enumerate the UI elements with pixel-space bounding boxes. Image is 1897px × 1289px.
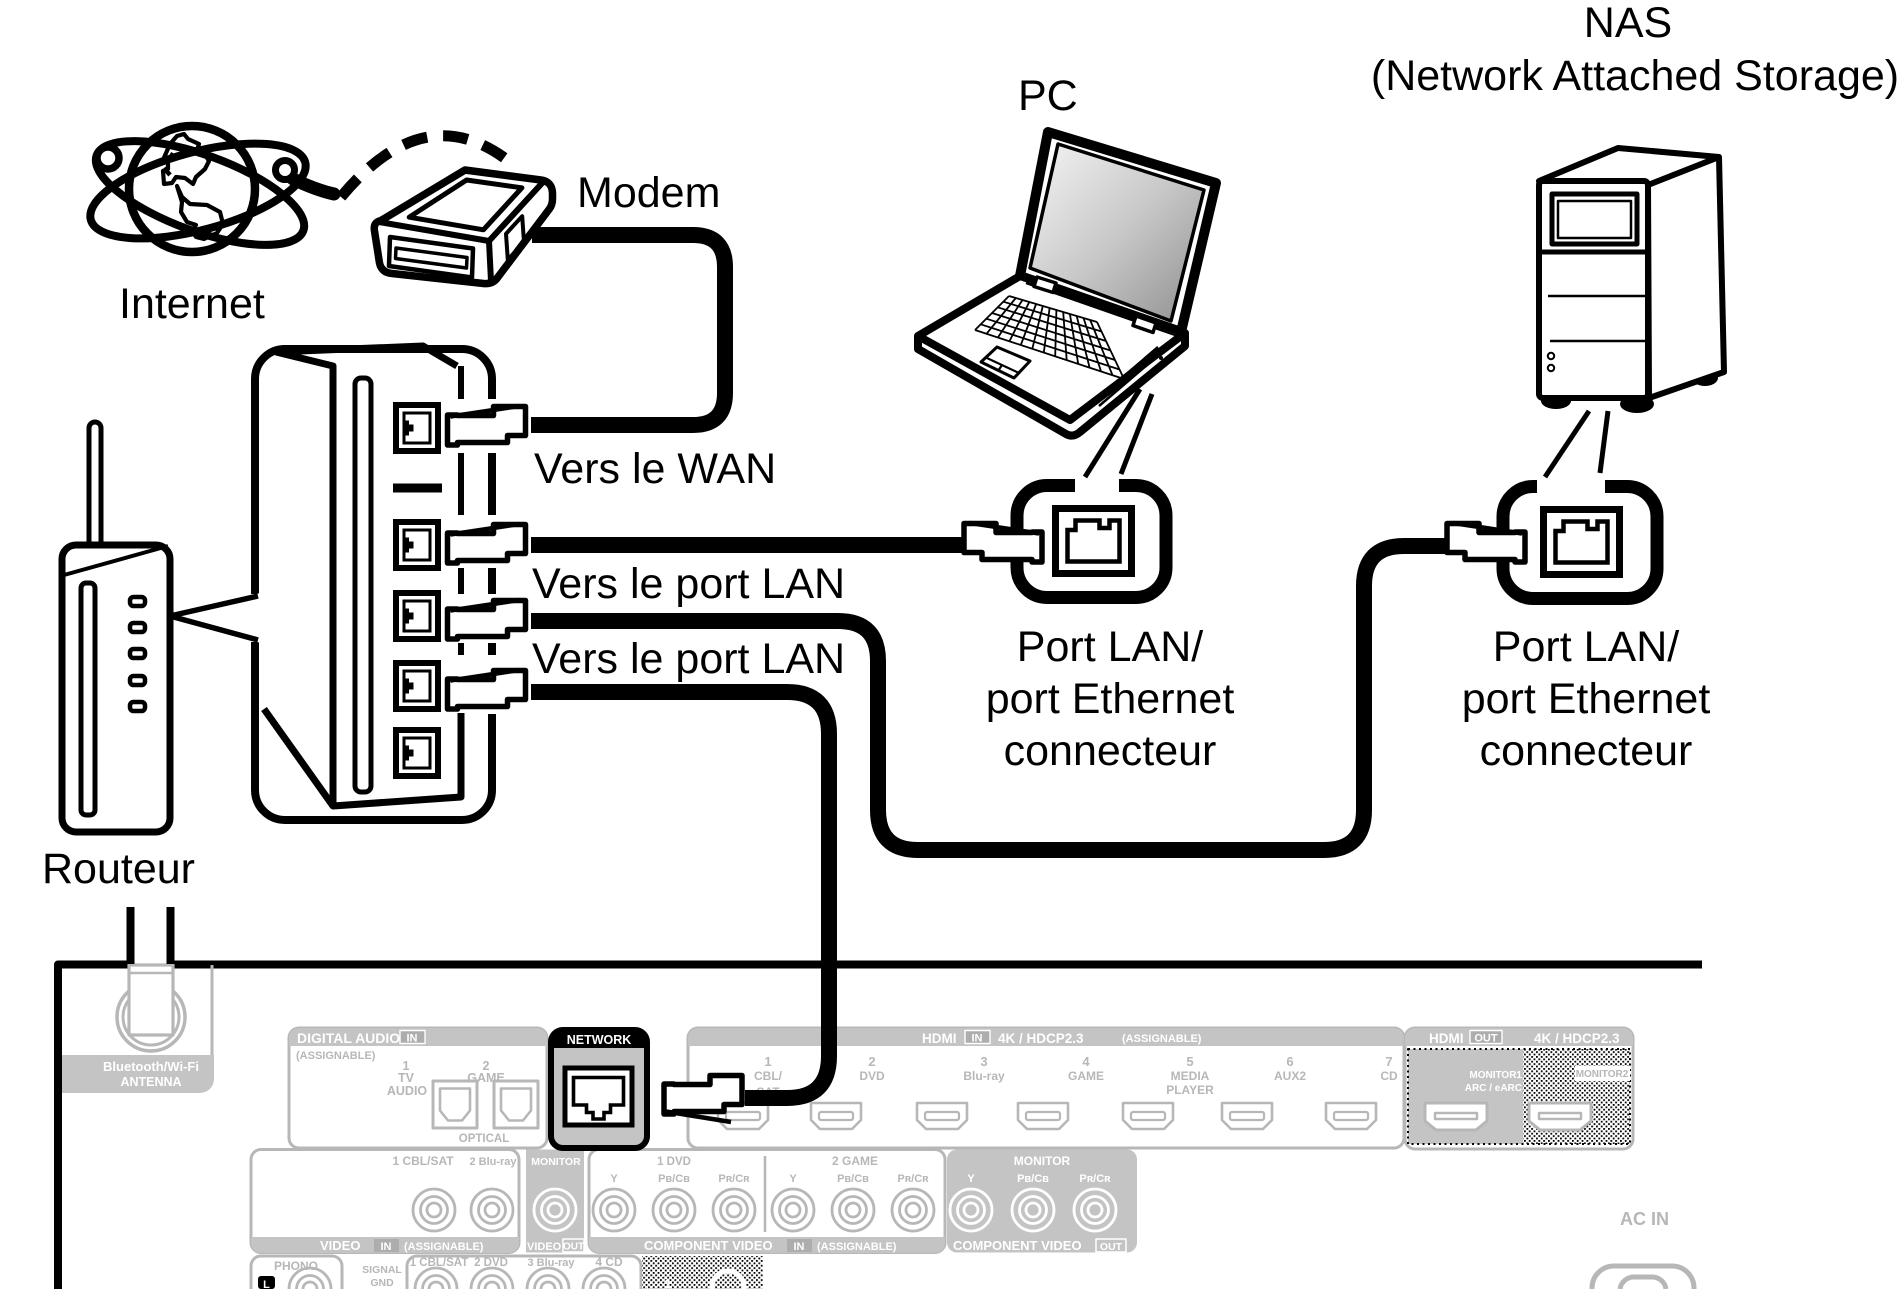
svg-text:IN: IN (794, 1241, 805, 1253)
svg-text:L: L (263, 1279, 270, 1289)
svg-text:Pʀ/Cʀ: Pʀ/Cʀ (897, 1173, 929, 1185)
svg-text:2 GAME: 2 GAME (832, 1154, 878, 1168)
svg-text:MONITOR: MONITOR (531, 1156, 581, 1168)
svg-text:CD: CD (1380, 1069, 1398, 1083)
svg-text:Port LAN/: Port LAN/ (1493, 623, 1679, 671)
svg-text:1 CBL/SAT: 1 CBL/SAT (392, 1154, 454, 1168)
svg-text:3: 3 (980, 1054, 987, 1069)
svg-text:HDMI: HDMI (1429, 1031, 1464, 1046)
svg-text:MONITOR2: MONITOR2 (1576, 1069, 1629, 1080)
svg-text:NETWORK: NETWORK (567, 1033, 632, 1047)
svg-text:port Ethernet: port Ethernet (986, 675, 1235, 723)
svg-text:MONITOR: MONITOR (1014, 1154, 1071, 1168)
svg-text:Vers le port LAN: Vers le port LAN (532, 635, 845, 683)
svg-text:OUT: OUT (1474, 1033, 1498, 1045)
svg-text:connecteur: connecteur (1480, 727, 1693, 775)
svg-text:4 CD: 4 CD (595, 1255, 623, 1269)
svg-text:Pʀ/Cʀ: Pʀ/Cʀ (1079, 1173, 1111, 1185)
svg-text:1: 1 (664, 1276, 671, 1289)
svg-text:Pʙ/Cʙ: Pʙ/Cʙ (837, 1173, 869, 1185)
svg-text:VIDEO: VIDEO (527, 1241, 562, 1253)
svg-text:AUDIO: AUDIO (387, 1084, 428, 1098)
svg-text:1: 1 (764, 1054, 771, 1069)
svg-text:PHONO: PHONO (274, 1259, 318, 1273)
svg-text:ANTENNA: ANTENNA (120, 1075, 181, 1089)
svg-text:OPTICAL: OPTICAL (459, 1133, 509, 1145)
svg-text:AUX2: AUX2 (1274, 1069, 1306, 1083)
svg-text:Pʀ/Cʀ: Pʀ/Cʀ (718, 1173, 750, 1185)
svg-text:GAME: GAME (1068, 1069, 1104, 1083)
svg-text:7: 7 (1385, 1054, 1392, 1069)
svg-text:5: 5 (1186, 1054, 1193, 1069)
svg-text:port Ethernet: port Ethernet (1462, 675, 1711, 723)
svg-text:Y: Y (789, 1173, 797, 1185)
svg-text:PC: PC (1018, 72, 1078, 120)
svg-text:4K / HDCP2.3: 4K / HDCP2.3 (998, 1031, 1084, 1046)
svg-text:1 DVD: 1 DVD (657, 1156, 691, 1168)
svg-text:(ASSIGNABLE): (ASSIGNABLE) (404, 1241, 484, 1253)
svg-text:COMPONENT VIDEO: COMPONENT VIDEO (644, 1238, 773, 1253)
svg-text:Routeur: Routeur (42, 845, 195, 893)
svg-text:Vers le WAN: Vers le WAN (534, 445, 776, 493)
svg-text:Port LAN/: Port LAN/ (1017, 623, 1203, 671)
svg-text:IN: IN (381, 1241, 392, 1253)
svg-text:Bluetooth/Wi-Fi: Bluetooth/Wi-Fi (103, 1059, 199, 1074)
svg-text:HDMI: HDMI (922, 1031, 957, 1046)
svg-text:Vers le port LAN: Vers le port LAN (532, 560, 845, 608)
svg-text:connecteur: connecteur (1004, 727, 1217, 775)
svg-text:(ASSIGNABLE): (ASSIGNABLE) (1122, 1033, 1202, 1045)
svg-text:MONITOR1: MONITOR1 (1469, 1070, 1522, 1081)
svg-text:SIGNAL: SIGNAL (362, 1264, 402, 1276)
svg-text:CBL/: CBL/ (754, 1069, 783, 1083)
svg-text:IN: IN (407, 1033, 418, 1045)
svg-text:Pʙ/Cʙ: Pʙ/Cʙ (658, 1173, 690, 1185)
svg-text:Pʙ/Cʙ: Pʙ/Cʙ (1017, 1173, 1049, 1185)
svg-text:Blu-ray: Blu-ray (963, 1069, 1005, 1083)
svg-text:IN: IN (972, 1033, 983, 1045)
svg-text:Y: Y (610, 1173, 618, 1185)
svg-text:OUT: OUT (1100, 1241, 1123, 1253)
svg-text:DIGITAL AUDIO: DIGITAL AUDIO (297, 1030, 400, 1046)
svg-text:COMPONENT VIDEO: COMPONENT VIDEO (953, 1238, 1082, 1253)
svg-text:ARC / eARC: ARC / eARC (1465, 1083, 1522, 1094)
svg-text:NAS: NAS (1584, 0, 1672, 47)
svg-text:AC IN: AC IN (1620, 1209, 1669, 1229)
svg-text:GND: GND (370, 1277, 394, 1289)
svg-text:(ASSIGNABLE): (ASSIGNABLE) (817, 1241, 897, 1253)
svg-text:(ASSIGNABLE): (ASSIGNABLE) (296, 1050, 376, 1062)
svg-text:OUT: OUT (563, 1242, 584, 1253)
svg-text:4K / HDCP2.3: 4K / HDCP2.3 (1534, 1031, 1620, 1046)
svg-text:Modem: Modem (577, 169, 720, 217)
svg-text:Internet: Internet (119, 280, 265, 328)
svg-text:PLAYER: PLAYER (1166, 1083, 1214, 1097)
svg-text:2 Blu-ray: 2 Blu-ray (469, 1156, 517, 1168)
svg-text:4: 4 (1082, 1054, 1090, 1069)
svg-text:Y: Y (967, 1173, 975, 1185)
svg-text:VIDEO: VIDEO (320, 1238, 360, 1253)
svg-text:DVD: DVD (859, 1069, 885, 1083)
svg-text:MEDIA: MEDIA (1171, 1069, 1210, 1083)
svg-text:2: 2 (868, 1054, 875, 1069)
svg-text:(Network Attached Storage): (Network Attached Storage) (1371, 52, 1897, 100)
svg-text:6: 6 (1286, 1054, 1293, 1069)
svg-text:TV: TV (398, 1071, 415, 1085)
